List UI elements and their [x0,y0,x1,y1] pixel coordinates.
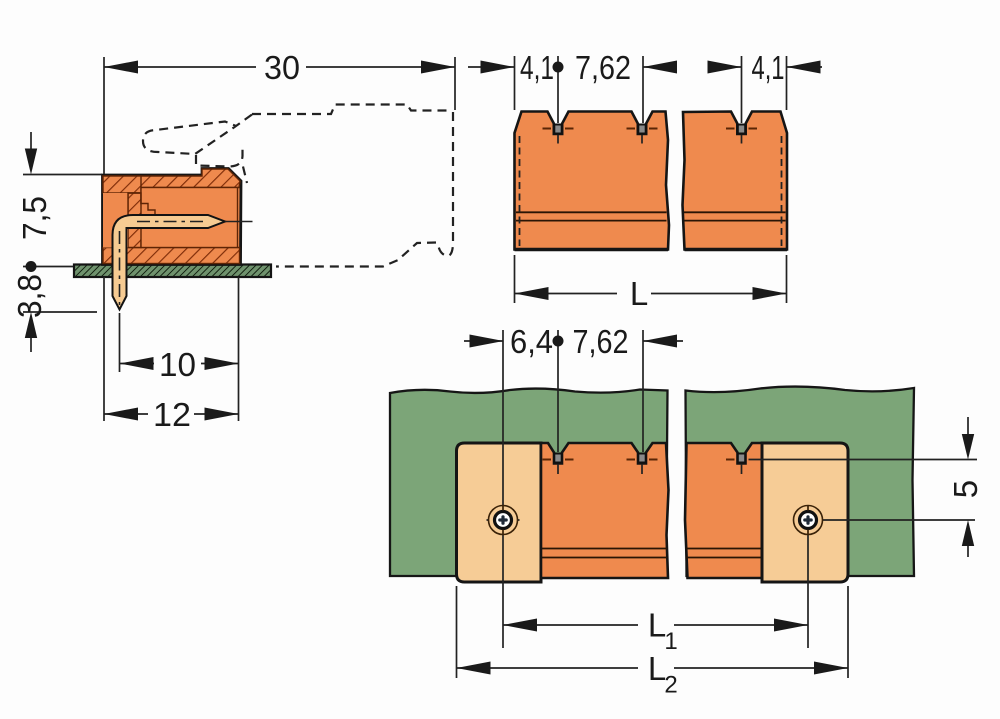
svg-text:7,5: 7,5 [16,196,53,240]
svg-text:1: 1 [664,628,677,655]
svg-text:30: 30 [264,49,300,86]
svg-text:12: 12 [153,396,191,433]
svg-text:4,1: 4,1 [520,49,554,86]
svg-text:10: 10 [159,346,196,383]
svg-text:4,1: 4,1 [752,49,785,86]
svg-text:7,62: 7,62 [575,49,631,86]
svg-text:2: 2 [664,672,677,699]
svg-text:7,62: 7,62 [573,323,629,360]
svg-text:L: L [630,275,648,312]
svg-text:5: 5 [947,480,984,498]
svg-text:6,4: 6,4 [510,323,553,360]
svg-text:3,8: 3,8 [11,274,48,318]
